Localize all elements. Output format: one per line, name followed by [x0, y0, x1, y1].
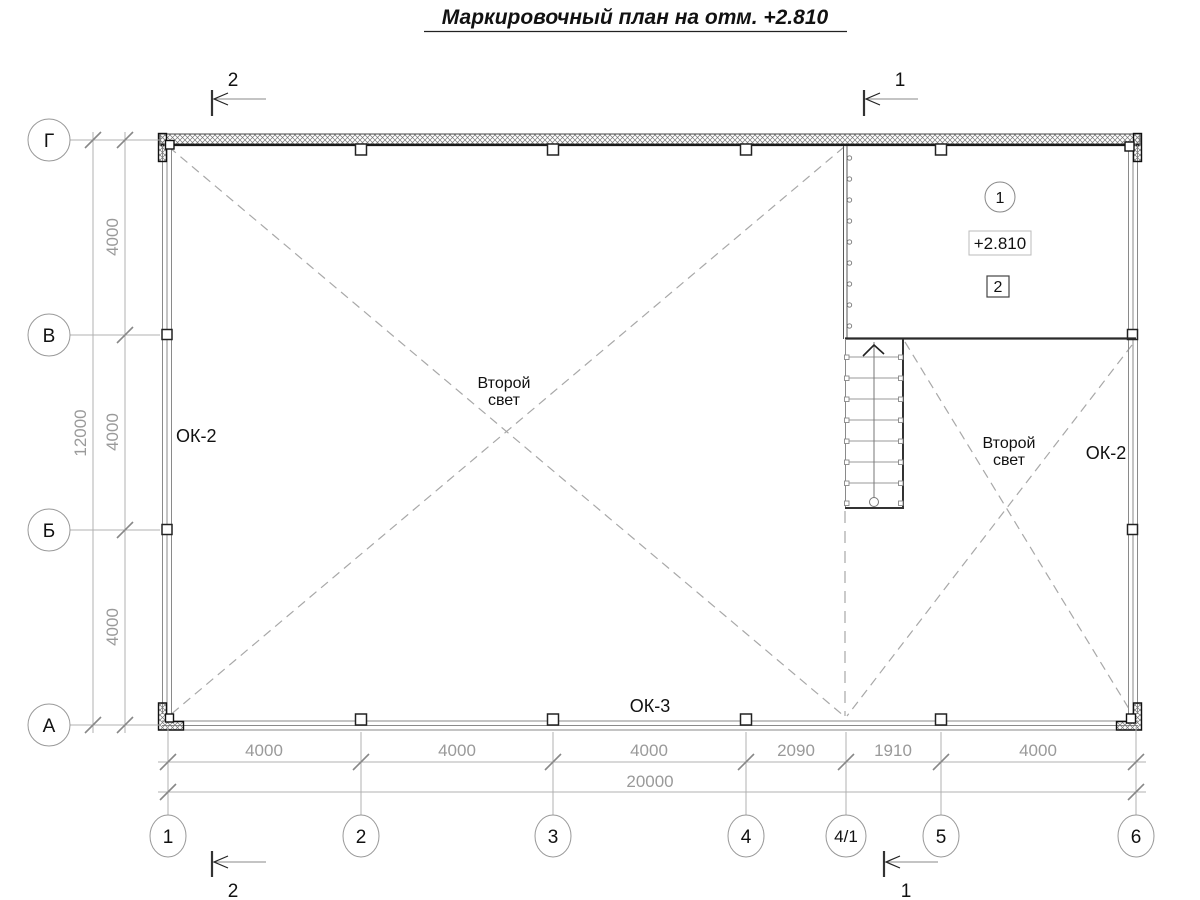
axis-label-1: 1 [163, 827, 174, 848]
section-marks: 2 1 2 1 [212, 70, 938, 900]
dim-2-3: 4000 [438, 741, 476, 760]
column-bottom-axis3 [548, 714, 559, 725]
plan-labels: ОК-2 ОК-2 ОК-3 Второй свет Второй свет [176, 375, 1126, 716]
column-bottom-axis5 [936, 714, 947, 725]
elevation-label: +2.810 [974, 234, 1026, 253]
corner-marker-top-left [166, 141, 175, 150]
corner-marker-bottom-left [166, 714, 174, 722]
dim-Г-В: 4000 [103, 218, 122, 256]
axis-label-В: В [43, 326, 56, 347]
dim-5-6: 4000 [1019, 741, 1057, 760]
dim-Б-А: 4000 [103, 608, 122, 646]
exterior-walls [160, 134, 1140, 730]
column-top-axis2 [356, 144, 367, 155]
column-top-axis4 [741, 144, 752, 155]
void-right-diagonal-2 [847, 345, 1132, 716]
corner-columns [159, 134, 1142, 731]
dim-В-Б: 4000 [103, 413, 122, 451]
room-number: 1 [996, 190, 1005, 207]
dim-3-4: 4000 [630, 741, 668, 760]
column-bottom-axis4 [741, 714, 752, 725]
axis-label-3: 3 [548, 827, 559, 848]
section-mark-2-top: 2 [212, 70, 266, 116]
section-mark-2-bottom: 2 [212, 851, 266, 900]
axis-label-5: 5 [936, 827, 947, 848]
window-bottom-label: ОК-3 [630, 696, 671, 716]
bottom-dimensions: 4000 4000 4000 2090 1910 4000 20000 [158, 727, 1146, 815]
axis-label-А: А [43, 716, 56, 737]
page-title: Маркировочный план на отм. +2.810 [442, 6, 829, 29]
axis-bubbles-left: Г В Б А [28, 119, 70, 746]
dim-4-41: 2090 [777, 741, 815, 760]
section-label-2-bottom: 2 [228, 881, 239, 900]
axis-bubbles-bottom: 1 2 3 4 4/1 5 6 [150, 815, 1154, 857]
axis-label-41: 4/1 [834, 827, 858, 846]
dim-41-5: 1910 [874, 741, 912, 760]
partition-stud-markers [847, 156, 851, 328]
axis-label-2: 2 [356, 827, 367, 848]
dim-total-left: 12000 [71, 409, 90, 456]
axis-label-Б: Б [43, 521, 55, 542]
room-annotations: 1 +2.810 2 [969, 182, 1031, 297]
void-left-label-line2: свет [488, 392, 521, 409]
stair-start-circle [870, 498, 879, 507]
column-left-axisB [162, 330, 172, 340]
void-right-label-line2: свет [993, 452, 1026, 469]
column-left-axisБ [162, 525, 172, 535]
section-label-2-top: 2 [228, 70, 239, 91]
left-dimensions: 4000 4000 4000 12000 [70, 132, 160, 733]
column-right-axisБ [1128, 525, 1138, 535]
top-wall [160, 134, 1140, 144]
bottom-window-wall [162, 721, 1138, 730]
column-bottom-axis2 [356, 714, 367, 725]
staircase [845, 339, 905, 508]
section-mark-1-top: 1 [864, 70, 918, 116]
window-right-label: ОК-2 [1086, 443, 1127, 463]
column-top-axis3 [548, 144, 559, 155]
section-label-1-bottom: 1 [901, 881, 912, 900]
marking-plan-drawing: Маркировочный план на отм. +2.810 [0, 0, 1200, 900]
section-mark-1-bottom: 1 [884, 851, 938, 900]
detail-mark-label: 2 [994, 279, 1003, 296]
section-label-1-top: 1 [895, 70, 906, 91]
corner-marker-top-right [1125, 142, 1134, 151]
window-left-label: ОК-2 [176, 426, 217, 446]
right-window-wall [1129, 145, 1138, 714]
corner-marker-bottom-right [1127, 714, 1136, 723]
dim-1-2: 4000 [245, 741, 283, 760]
void-right-label-line1: Второй [983, 435, 1036, 452]
column-top-axis5 [936, 144, 947, 155]
dim-total-bottom: 20000 [626, 772, 673, 791]
axis-label-6: 6 [1131, 827, 1142, 848]
void-right-diagonal-1 [905, 342, 1134, 717]
left-window-wall [163, 145, 172, 714]
axis-label-Г: Г [44, 131, 54, 152]
void-left-label-line1: Второй [478, 375, 531, 392]
drawing-title: Маркировочный план на отм. +2.810 [424, 6, 847, 32]
axis-label-4: 4 [741, 827, 752, 848]
